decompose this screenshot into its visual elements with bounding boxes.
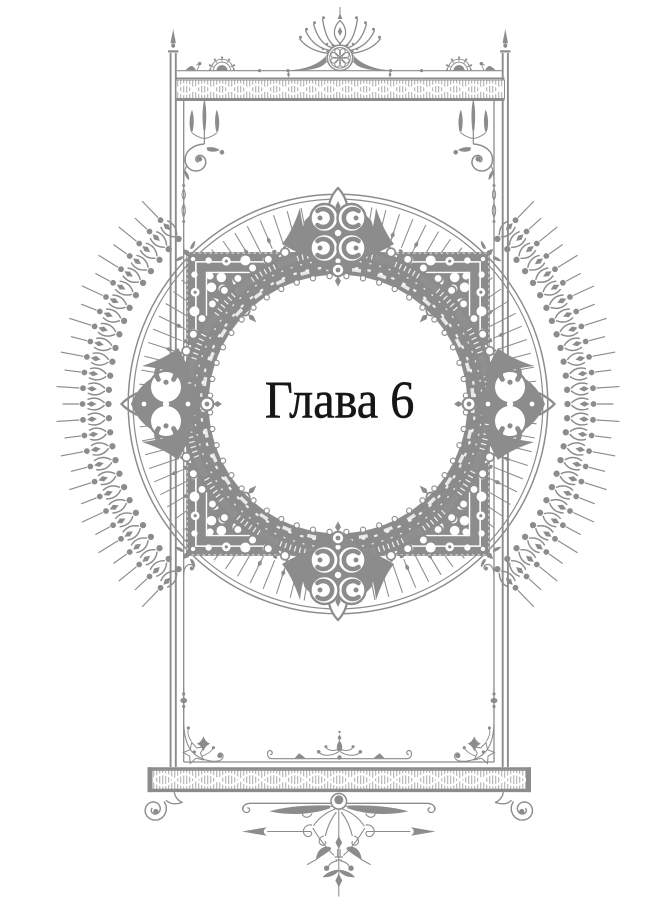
svg-text:Глава 6: Глава 6 bbox=[265, 370, 414, 429]
